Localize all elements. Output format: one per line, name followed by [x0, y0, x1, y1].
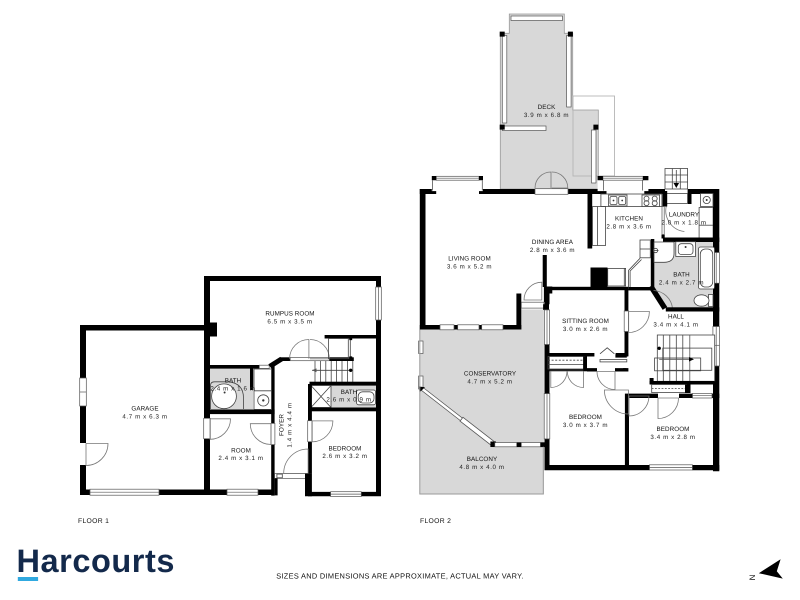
svg-text:N: N — [748, 574, 757, 580]
svg-text:DECK: DECK — [538, 104, 556, 111]
svg-text:Harcourts: Harcourts — [17, 543, 175, 579]
svg-text:2.4 m x 1.6 m: 2.4 m x 1.6 m — [210, 386, 255, 393]
svg-text:2.6 m x 0.9 m: 2.6 m x 0.9 m — [326, 397, 371, 404]
svg-text:CONSERVATORY: CONSERVATORY — [464, 371, 517, 378]
svg-text:2.0 m x 1.8 m: 2.0 m x 1.8 m — [661, 220, 706, 227]
svg-text:3.4 m x 4.1 m: 3.4 m x 4.1 m — [653, 322, 698, 329]
svg-text:3.0 m x 2.6 m: 3.0 m x 2.6 m — [563, 326, 608, 333]
svg-text:1.4 m x 4.4 m: 1.4 m x 4.4 m — [287, 402, 294, 447]
svg-text:LIVING ROOM: LIVING ROOM — [448, 256, 491, 263]
svg-text:GARAGE: GARAGE — [131, 406, 158, 413]
svg-text:BEDROOM: BEDROOM — [657, 426, 690, 433]
svg-text:SITTING ROOM: SITTING ROOM — [562, 318, 609, 325]
svg-text:2.4 m x 2.7 m: 2.4 m x 2.7 m — [659, 280, 704, 287]
svg-text:SIZES AND DIMENSIONS ARE APPRO: SIZES AND DIMENSIONS ARE APPROXIMATE, AC… — [276, 572, 524, 581]
svg-text:BATH: BATH — [341, 389, 358, 396]
svg-text:2.8 m x 3.6 m: 2.8 m x 3.6 m — [530, 247, 575, 254]
svg-text:BEDROOM: BEDROOM — [569, 414, 602, 421]
svg-text:3.9 m x 6.8 m: 3.9 m x 6.8 m — [524, 112, 569, 119]
svg-text:FLOOR 2: FLOOR 2 — [420, 518, 451, 525]
svg-text:FLOOR 1: FLOOR 1 — [78, 518, 109, 525]
svg-text:3.6 m x 5.2 m: 3.6 m x 5.2 m — [447, 264, 492, 271]
svg-text:RUMPUS ROOM: RUMPUS ROOM — [265, 311, 314, 318]
svg-text:KITCHEN: KITCHEN — [615, 216, 643, 223]
svg-text:HALL: HALL — [668, 314, 684, 321]
svg-text:BEDROOM: BEDROOM — [329, 446, 362, 453]
svg-text:2.4 m x 3.1 m: 2.4 m x 3.1 m — [218, 455, 263, 462]
svg-text:LAUNDRY: LAUNDRY — [669, 212, 700, 219]
svg-text:FOYER: FOYER — [279, 414, 286, 436]
svg-text:4.7 m x 6.3 m: 4.7 m x 6.3 m — [122, 414, 167, 421]
svg-text:BATH: BATH — [225, 378, 242, 385]
svg-text:BALCONY: BALCONY — [467, 456, 498, 463]
svg-text:3.0 m x 3.7 m: 3.0 m x 3.7 m — [563, 422, 608, 429]
svg-text:3.4 m x 2.8 m: 3.4 m x 2.8 m — [650, 434, 695, 441]
svg-text:2.6 m x 3.2 m: 2.6 m x 3.2 m — [322, 453, 367, 460]
svg-text:BATH: BATH — [673, 272, 690, 279]
svg-text:2.8 m x 3.6 m: 2.8 m x 3.6 m — [606, 224, 651, 231]
svg-text:6.5 m x 3.5 m: 6.5 m x 3.5 m — [267, 319, 312, 326]
svg-text:4.8 m x 4.0 m: 4.8 m x 4.0 m — [459, 464, 504, 471]
svg-text:ROOM: ROOM — [231, 448, 251, 455]
svg-text:DINING AREA: DINING AREA — [532, 239, 574, 246]
svg-text:4.7 m x 5.2 m: 4.7 m x 5.2 m — [467, 379, 512, 386]
